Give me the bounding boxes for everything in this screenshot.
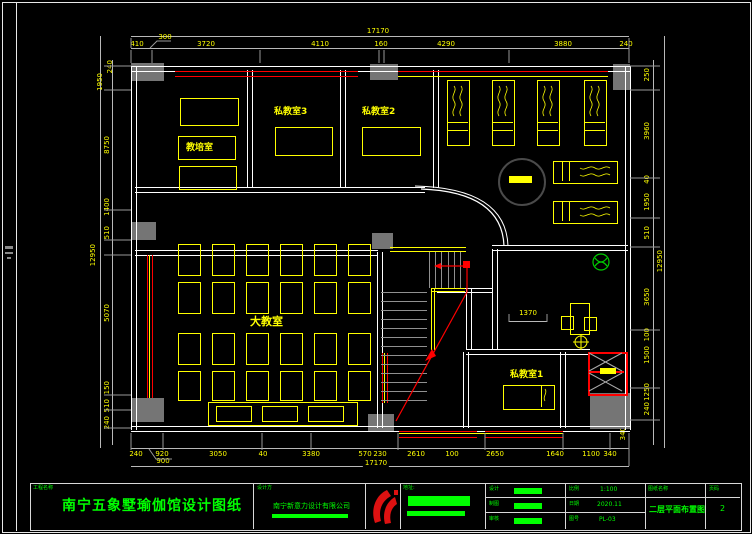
stair-tread bbox=[381, 337, 427, 338]
stage-mat bbox=[262, 406, 298, 422]
dim-label: 1640 bbox=[546, 451, 564, 458]
column-block bbox=[590, 393, 630, 429]
bed-line bbox=[562, 162, 563, 181]
stair-tread bbox=[381, 373, 427, 374]
wall-stair-right bbox=[466, 288, 472, 350]
dim-label-leader: 900 bbox=[156, 458, 169, 465]
field-value-bar bbox=[514, 488, 542, 494]
yoga-mat bbox=[212, 244, 235, 276]
dim-label: 3880 bbox=[554, 41, 572, 48]
dim-line-right-overall bbox=[664, 36, 665, 448]
dim-label: 8750 bbox=[104, 136, 111, 154]
title-block-divider bbox=[645, 483, 646, 529]
field-value: PL-03 bbox=[599, 517, 616, 523]
dim-line-right bbox=[653, 60, 654, 445]
wall-partition bbox=[247, 70, 253, 188]
dim-line-inner bbox=[509, 321, 547, 322]
stair-riser bbox=[435, 252, 436, 288]
field-label: 比例 bbox=[569, 487, 579, 492]
dim-label: 150 bbox=[104, 381, 111, 394]
bed-line bbox=[562, 202, 563, 221]
chair bbox=[584, 317, 597, 331]
stair-riser bbox=[454, 252, 455, 288]
dim-label: 510 bbox=[104, 226, 111, 239]
yoga-mat bbox=[246, 282, 269, 314]
wall-hatch-edge bbox=[384, 353, 385, 403]
title-block-divider bbox=[565, 483, 566, 529]
stair-tread bbox=[381, 391, 427, 392]
dim-label: 340 bbox=[603, 451, 616, 458]
dim-label: 250 bbox=[644, 68, 651, 81]
yoga-mat bbox=[178, 333, 201, 365]
yoga-mat bbox=[212, 282, 235, 314]
page-value: 2 bbox=[720, 505, 725, 513]
dim-label: 570 bbox=[358, 451, 371, 458]
stair-riser bbox=[441, 252, 442, 288]
round-table-top bbox=[509, 176, 532, 183]
dim-label: 410 bbox=[130, 41, 143, 48]
title-block-row-line bbox=[485, 512, 645, 513]
stair-tread bbox=[381, 382, 427, 383]
bed bbox=[492, 80, 515, 146]
wall-room1-right bbox=[560, 352, 566, 428]
drawing-sheet: 410 300 3720 4110 160 4290 3880 240 1717… bbox=[0, 0, 752, 534]
dim-label: 40 bbox=[644, 175, 651, 184]
dim-label-overall: 12950 bbox=[657, 250, 664, 272]
yoga-mat bbox=[314, 371, 337, 401]
dim-label: 3650 bbox=[644, 288, 651, 306]
dim-label-overall: 12950 bbox=[90, 244, 97, 266]
address-label: 地址: bbox=[403, 486, 415, 491]
title-block-divider bbox=[365, 483, 366, 529]
address-text-bar bbox=[407, 511, 465, 516]
stair-rail bbox=[434, 288, 435, 350]
dim-label: 4290 bbox=[437, 41, 455, 48]
stair-tread bbox=[381, 355, 427, 356]
stair-rail bbox=[431, 288, 465, 289]
stair-tread bbox=[381, 319, 427, 320]
field-label: 设计 bbox=[489, 487, 499, 492]
field-label: 图号 bbox=[569, 517, 579, 522]
bed bbox=[447, 80, 470, 146]
room-label-training: 教培室 bbox=[186, 144, 213, 153]
bed-line bbox=[448, 122, 468, 123]
bed bbox=[537, 80, 560, 146]
dim-label: 230 bbox=[373, 451, 386, 458]
dim-label: 1250 bbox=[644, 383, 651, 401]
dim-label: 160 bbox=[374, 41, 387, 48]
dim-label: 240 bbox=[104, 416, 111, 429]
bed-line bbox=[541, 386, 542, 407]
dim-label: 240 bbox=[644, 402, 651, 415]
stage-mat bbox=[216, 406, 252, 422]
room-label-private2: 私教室2 bbox=[362, 108, 395, 117]
dim-label: 2650 bbox=[486, 451, 504, 458]
field-label: 制图 bbox=[489, 502, 499, 507]
field-label: 审核 bbox=[489, 517, 499, 522]
yoga-mat bbox=[280, 244, 303, 276]
margin-mark bbox=[7, 257, 11, 259]
field-label: 日期 bbox=[569, 502, 579, 507]
stair-tread bbox=[381, 346, 427, 347]
wall-hatch bbox=[382, 353, 388, 403]
dim-label: 3050 bbox=[209, 451, 227, 458]
project-name: 南宁五象墅瑜伽馆设计图纸 bbox=[62, 499, 242, 513]
room-label-big-classroom: 大教室 bbox=[250, 316, 283, 327]
dim-label: 1950 bbox=[644, 193, 651, 211]
bed-line bbox=[569, 202, 570, 221]
wall-hatch bbox=[175, 71, 358, 77]
dim-label-overall: 17170 bbox=[367, 28, 389, 35]
stair-rail bbox=[431, 288, 432, 350]
dim-line-left-overall bbox=[100, 36, 101, 448]
field-value-bar bbox=[514, 503, 542, 509]
bed-line bbox=[585, 130, 605, 131]
yoga-mat bbox=[212, 333, 235, 365]
wall-hatch-edge bbox=[398, 76, 608, 77]
bed-line bbox=[493, 130, 513, 131]
stair-tread bbox=[381, 301, 427, 302]
title-block-row-line bbox=[485, 497, 740, 498]
yoga-mat bbox=[280, 282, 303, 314]
massage-bed bbox=[275, 127, 333, 156]
training-room-table bbox=[179, 166, 237, 190]
dim-line-top-overall bbox=[131, 36, 629, 37]
dim-label: 510 bbox=[644, 226, 651, 239]
bed-line bbox=[538, 122, 558, 123]
wall-hatch-edge bbox=[399, 433, 563, 434]
yoga-mat bbox=[348, 282, 371, 314]
wall-partition bbox=[433, 70, 439, 188]
dim-label-inner: 1370 bbox=[519, 310, 537, 317]
stair-tread bbox=[381, 364, 427, 365]
yoga-mat bbox=[178, 282, 201, 314]
stair-rail bbox=[390, 247, 466, 248]
yoga-mat bbox=[314, 333, 337, 365]
yoga-mat bbox=[212, 371, 235, 401]
sheet-name: 二层平面布置图 bbox=[649, 506, 705, 514]
dim-label: 100 bbox=[644, 328, 651, 341]
shaft-box bbox=[588, 352, 628, 396]
designer-underline bbox=[272, 514, 348, 518]
yoga-mat bbox=[348, 371, 371, 401]
training-room-table bbox=[180, 98, 239, 126]
yoga-mat bbox=[314, 282, 337, 314]
yoga-mat bbox=[246, 244, 269, 276]
dim-label: 5070 bbox=[104, 304, 111, 322]
dim-label: 240 bbox=[619, 41, 632, 48]
yoga-mat bbox=[178, 244, 201, 276]
yoga-mat bbox=[314, 244, 337, 276]
dim-label: 240 bbox=[129, 451, 142, 458]
wall-room1-top bbox=[466, 349, 590, 355]
page-label: 页码 bbox=[709, 487, 719, 492]
stair-tread bbox=[381, 292, 427, 293]
title-block-divider bbox=[705, 483, 706, 529]
bed-line bbox=[493, 122, 513, 123]
company-logo bbox=[367, 487, 399, 527]
dim-line-top bbox=[131, 48, 629, 49]
sheet-inner-border bbox=[16, 2, 17, 531]
yoga-mat bbox=[246, 371, 269, 401]
room-label-private3: 私教室3 bbox=[274, 108, 307, 117]
massage-bed bbox=[362, 127, 421, 156]
dim-label: 1500 bbox=[644, 346, 651, 364]
dim-label-overall: 17170 bbox=[363, 460, 389, 467]
stair-riser bbox=[429, 252, 430, 288]
dim-label: 4110 bbox=[311, 41, 329, 48]
dim-label: 300 bbox=[158, 34, 171, 41]
stair-riser bbox=[460, 252, 461, 288]
designer-label: 设计方 bbox=[257, 486, 272, 491]
title-block-divider bbox=[400, 483, 401, 529]
shaft-marker bbox=[600, 368, 616, 374]
project-name-label: 工程名称 bbox=[33, 486, 53, 491]
stage-mat bbox=[308, 406, 344, 422]
dim-label: 3380 bbox=[302, 451, 320, 458]
stair-tread bbox=[381, 310, 427, 311]
room-label-private1: 私教室1 bbox=[510, 371, 543, 380]
bed-line bbox=[538, 130, 558, 131]
dim-label: 1950 bbox=[97, 73, 104, 91]
designer-name: 南宁新意力设计有限公司 bbox=[273, 503, 350, 510]
dim-label: 40 bbox=[259, 451, 268, 458]
dim-label: 1100 bbox=[582, 451, 600, 458]
dim-label: 510 bbox=[104, 399, 111, 412]
field-value-bar bbox=[514, 518, 542, 524]
dim-line-bottom bbox=[131, 448, 629, 449]
chair bbox=[561, 316, 574, 330]
bed-line bbox=[585, 122, 605, 123]
stair-rail bbox=[390, 251, 466, 252]
wall-left bbox=[131, 66, 137, 430]
title-block-divider bbox=[485, 483, 486, 529]
dim-line-left bbox=[112, 60, 113, 445]
yoga-mat bbox=[348, 244, 371, 276]
bed-line bbox=[569, 162, 570, 181]
field-value: 2020.11 bbox=[597, 502, 622, 508]
yoga-mat bbox=[178, 371, 201, 401]
dim-label: 240 bbox=[107, 60, 114, 73]
dim-label: 3960 bbox=[644, 122, 651, 140]
bed-line bbox=[448, 130, 468, 131]
dim-label: 2610 bbox=[407, 451, 425, 458]
address-text-bar bbox=[408, 496, 470, 506]
stair-tread bbox=[381, 328, 427, 329]
yoga-mat bbox=[280, 333, 303, 365]
stair-riser bbox=[448, 252, 449, 288]
stair-rail bbox=[431, 291, 465, 292]
yoga-mat bbox=[280, 371, 303, 401]
field-value: 1:100 bbox=[600, 487, 617, 493]
wall-room1-left bbox=[463, 352, 469, 428]
sheet-name-label: 图纸名称 bbox=[648, 487, 668, 492]
wall-hatch bbox=[147, 255, 153, 398]
dim-label: 100 bbox=[445, 451, 458, 458]
massage-bed bbox=[503, 385, 555, 410]
margin-mark bbox=[5, 252, 13, 254]
stair-tread bbox=[381, 400, 427, 401]
bed bbox=[584, 80, 607, 146]
margin-mark bbox=[5, 246, 13, 249]
wall-reception-left bbox=[492, 249, 498, 350]
yoga-mat bbox=[246, 333, 269, 365]
dim-label: 1400 bbox=[104, 198, 111, 216]
title-block-divider bbox=[253, 483, 254, 529]
wall-partition bbox=[340, 70, 346, 188]
yoga-mat bbox=[348, 333, 371, 365]
dim-label: 3720 bbox=[197, 41, 215, 48]
wall-hatch-edge bbox=[149, 255, 150, 398]
wall-reception-top bbox=[492, 245, 628, 251]
